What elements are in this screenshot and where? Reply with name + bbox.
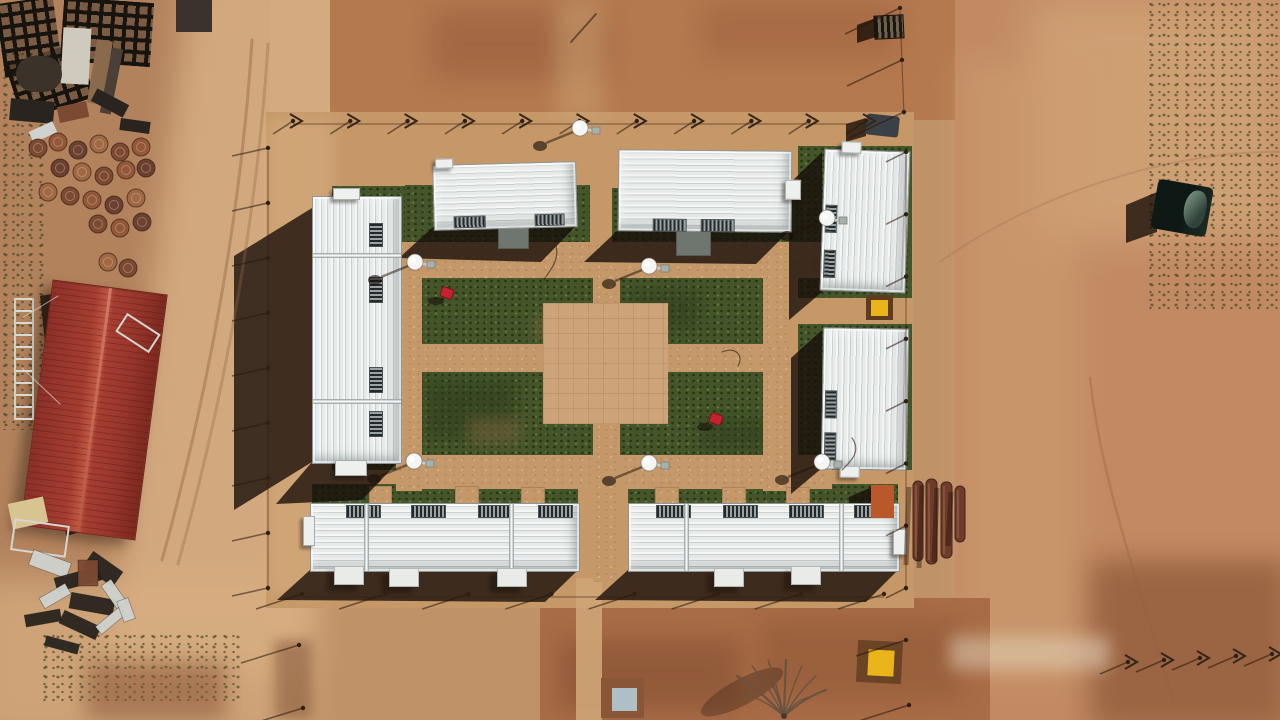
fence-left-post-shadow <box>232 423 268 431</box>
fence-bottom-post <box>466 592 470 596</box>
chair-shadow <box>428 297 444 305</box>
rusty-barrel-13 <box>61 187 79 205</box>
fence-left-post-shadow <box>232 368 268 376</box>
scrap-piece-7 <box>24 609 62 627</box>
lamp-globe-highlight <box>644 458 650 464</box>
pipe-shadow <box>934 488 937 562</box>
rusty-barrel-7 <box>51 159 69 177</box>
globe-lamp-7 <box>775 454 842 485</box>
lamp-shadow-blob <box>602 279 616 289</box>
fence-top-post <box>405 119 409 123</box>
fence-top-post <box>291 119 295 123</box>
fence-bottom-post <box>632 592 636 596</box>
detail-layer <box>0 0 1280 720</box>
track-topright-curve <box>940 152 1280 262</box>
fence-left-post-shadow <box>232 148 268 156</box>
fence-right-north-post <box>898 6 902 10</box>
fence-top-post <box>749 119 753 123</box>
barrel-top <box>29 139 47 157</box>
fence-left-post <box>266 311 270 315</box>
fence-south-right-post <box>907 703 911 707</box>
globe-lamp-3 <box>368 254 435 285</box>
barrel-top <box>99 253 117 271</box>
fence-far-bottom-right-post <box>1270 652 1274 656</box>
fence-south-left-post-shadow <box>245 708 303 720</box>
rusty-barrel-18 <box>111 219 129 237</box>
fence-left-post-shadow <box>232 533 268 541</box>
fence-right-post <box>904 461 908 465</box>
lamp-base <box>426 460 434 467</box>
fence-bottom-post <box>549 592 553 596</box>
lamp-shadow-blob <box>533 141 547 151</box>
barrel-top <box>61 187 79 205</box>
fence-top-post <box>463 119 467 123</box>
barrel-top <box>73 163 91 181</box>
barrel-top <box>95 167 113 185</box>
red-chair-2 <box>697 412 723 431</box>
fence-right-post-shadow <box>886 401 906 411</box>
rusty-barrel-20 <box>99 253 117 271</box>
lamp-base <box>834 461 842 468</box>
fence-right-north <box>845 6 906 138</box>
fence-bottom-post-shadow <box>755 594 801 609</box>
barrel-top <box>89 215 107 233</box>
chair-shadow <box>697 423 713 431</box>
fence-bottom <box>256 592 886 609</box>
barrel-top <box>137 159 155 177</box>
fence-far-bottom-right-post-shadow <box>1244 654 1272 666</box>
fence-left-post <box>266 146 270 150</box>
fence-bottom-post <box>716 592 720 596</box>
fence-top-post <box>348 119 352 123</box>
barrel-top <box>117 161 135 179</box>
fence-right-north-post-shadow <box>847 60 902 86</box>
globe-lamp-4 <box>602 258 669 289</box>
fence-bottom-post-shadow <box>589 594 635 609</box>
fence-south-right-post-shadow <box>856 640 906 656</box>
rusty-barrel-19 <box>133 213 151 231</box>
guy-wire-1 <box>22 296 58 318</box>
barrel-top <box>69 141 87 159</box>
rusty-barrel-16 <box>127 189 145 207</box>
fence-south-left <box>241 643 305 720</box>
fence-right-post <box>904 337 908 341</box>
fence-far-bottom-right-post <box>1162 658 1166 662</box>
barrel-top <box>132 138 150 156</box>
chair-seat <box>709 412 724 426</box>
lamp-base <box>427 261 435 268</box>
scrap-piece-1 <box>28 550 71 579</box>
wire-1 <box>544 246 557 280</box>
scrap-piece-8 <box>59 610 101 640</box>
fence-far-bottom-right-post-shadow <box>1208 656 1236 668</box>
lamp-shadow-blob <box>368 275 382 285</box>
rusty-barrel-9 <box>95 167 113 185</box>
scrap-piece-4 <box>39 583 71 608</box>
lamp-globe-highlight <box>822 213 828 219</box>
track-left-2 <box>178 44 268 564</box>
fence-right-post-shadow <box>886 214 906 224</box>
fence-top-post <box>692 119 696 123</box>
wire-3 <box>722 350 740 366</box>
pipe-body <box>955 486 965 542</box>
lamp-base <box>661 265 669 272</box>
fence-right-post-shadow <box>886 339 906 349</box>
fence-bottom-post-shadow <box>256 594 302 609</box>
fence-far-bottom-right-post-shadow <box>1172 658 1200 670</box>
rusty-barrel-3 <box>69 141 87 159</box>
barrel-top <box>83 191 101 209</box>
barrel-top <box>111 219 129 237</box>
fence-bottom-post-shadow <box>422 594 468 609</box>
barrel-top <box>119 259 137 277</box>
fence-right-post <box>904 212 908 216</box>
fence-top-post <box>864 119 868 123</box>
fence-left-post <box>266 531 270 535</box>
fence-south-left-post-shadow <box>241 645 299 663</box>
barrel-top <box>51 159 69 177</box>
lamp-globe-highlight <box>817 457 823 463</box>
fence-right-north-post-shadow <box>845 8 900 34</box>
rusty-barrel-1 <box>29 139 47 157</box>
lamp-base <box>661 462 669 469</box>
fence-right-post-shadow <box>886 277 906 287</box>
fence-right-north-wire <box>900 11 904 115</box>
barrel-top <box>39 183 57 201</box>
chair-seat <box>440 286 455 300</box>
barrel-top <box>133 213 151 231</box>
fence-far-bottom-right-post <box>1234 654 1238 658</box>
rusty-barrel-8 <box>73 163 91 181</box>
fence-right-post <box>904 399 908 403</box>
scrap-piece-11 <box>78 560 98 586</box>
fence-south-right <box>856 638 911 720</box>
fence-top-post <box>520 119 524 123</box>
barrel-top <box>49 133 67 151</box>
fence-right-post-shadow <box>886 152 906 162</box>
barrel-top <box>90 135 108 153</box>
fence-top-post <box>635 119 639 123</box>
tree-branch <box>784 660 786 716</box>
fence-left-post-shadow <box>232 478 268 486</box>
tree-trunk <box>781 713 787 719</box>
rusty-pipe-4 <box>948 486 965 546</box>
fence-right-post-shadow <box>886 463 906 473</box>
barrel-top <box>105 196 123 214</box>
rusty-barrel-17 <box>89 215 107 233</box>
scrap-piece-10 <box>44 636 79 654</box>
fence-south-left-post <box>301 706 305 710</box>
rusty-barrel-10 <box>117 161 135 179</box>
fence-south-left-post <box>297 643 301 647</box>
bare-tree <box>695 659 826 720</box>
fence-bottom-post <box>383 592 387 596</box>
fence-far-bottom-right-post-shadow <box>1100 662 1128 674</box>
globe-lamp-6 <box>602 455 669 486</box>
fence-left-post-shadow <box>232 313 268 321</box>
fence-left-post <box>266 201 270 205</box>
lamp-shadow-blob <box>367 474 381 484</box>
fence-left-post <box>266 366 270 370</box>
fence-left-post <box>266 586 270 590</box>
fence-left-post <box>266 256 270 260</box>
fence-bottom-post-shadow <box>838 594 884 609</box>
fence-right-post-shadow <box>886 526 906 536</box>
fence-far-bottom-right-post <box>1126 660 1130 664</box>
fence-right-north-post <box>902 110 906 114</box>
lamp-shadow-blob <box>602 476 616 486</box>
fence-right-north-post <box>900 58 904 62</box>
fence-bottom-post-shadow <box>672 594 718 609</box>
rusty-barrel-15 <box>105 196 123 214</box>
fence-south-right-post-shadow <box>859 705 909 720</box>
fence-far-bottom-right <box>1100 647 1280 674</box>
lamp-globe-highlight <box>575 123 581 129</box>
rusty-barrel-2 <box>49 133 67 151</box>
fence-bottom-post-shadow <box>505 594 551 609</box>
wire-2 <box>842 438 856 470</box>
lamp-globe-highlight <box>410 257 416 263</box>
fence-south-right-post <box>904 638 908 642</box>
pole-shadow-top <box>571 14 596 42</box>
rusty-barrel-4 <box>90 135 108 153</box>
fence-left-post <box>266 476 270 480</box>
rusty-barrel-6 <box>132 138 150 156</box>
lamp-shadow-blob <box>780 231 794 241</box>
lamp-globe-highlight <box>644 261 650 267</box>
fence-far-bottom-right-post-shadow <box>1136 660 1164 672</box>
fence-right-post <box>904 150 908 154</box>
red-chair-1 <box>428 286 454 305</box>
fence-right-post <box>904 274 908 278</box>
fence-bottom-post <box>882 592 886 596</box>
fence-far-bottom-right-post <box>1198 656 1202 660</box>
fence-top-post <box>807 119 811 123</box>
fence-left-post-shadow <box>232 588 268 596</box>
globe-lamp-5 <box>367 453 434 484</box>
rusty-barrel-14 <box>83 191 101 209</box>
globe-lamp-2 <box>780 210 847 241</box>
lamp-base <box>839 217 847 224</box>
fence-right-north-post-shadow <box>849 112 904 138</box>
fence-bottom-post <box>300 592 304 596</box>
fence-bottom-post-shadow <box>339 594 385 609</box>
lamp-base <box>592 127 600 134</box>
rusty-barrel-21 <box>119 259 137 277</box>
pipe-shadow <box>919 485 922 568</box>
lamp-shadow-blob <box>775 475 789 485</box>
barrel-top <box>127 189 145 207</box>
fence-right-post <box>904 586 908 590</box>
pipe-shadow <box>906 487 909 565</box>
fence-bottom-post <box>799 592 803 596</box>
fence-left-post-shadow <box>232 258 268 266</box>
guy-wire-2 <box>22 368 60 404</box>
pipe-shadow <box>948 492 951 546</box>
lamp-globe-highlight <box>409 456 415 462</box>
rusty-barrel-5 <box>111 143 129 161</box>
rusty-barrel-11 <box>137 159 155 177</box>
globe-lamp-1 <box>533 120 600 151</box>
fence-left-post <box>266 421 270 425</box>
rusty-barrel-12 <box>39 183 57 201</box>
aerial-scene <box>0 0 1280 720</box>
fence-right-post-shadow <box>886 588 906 598</box>
barrel-top <box>111 143 129 161</box>
